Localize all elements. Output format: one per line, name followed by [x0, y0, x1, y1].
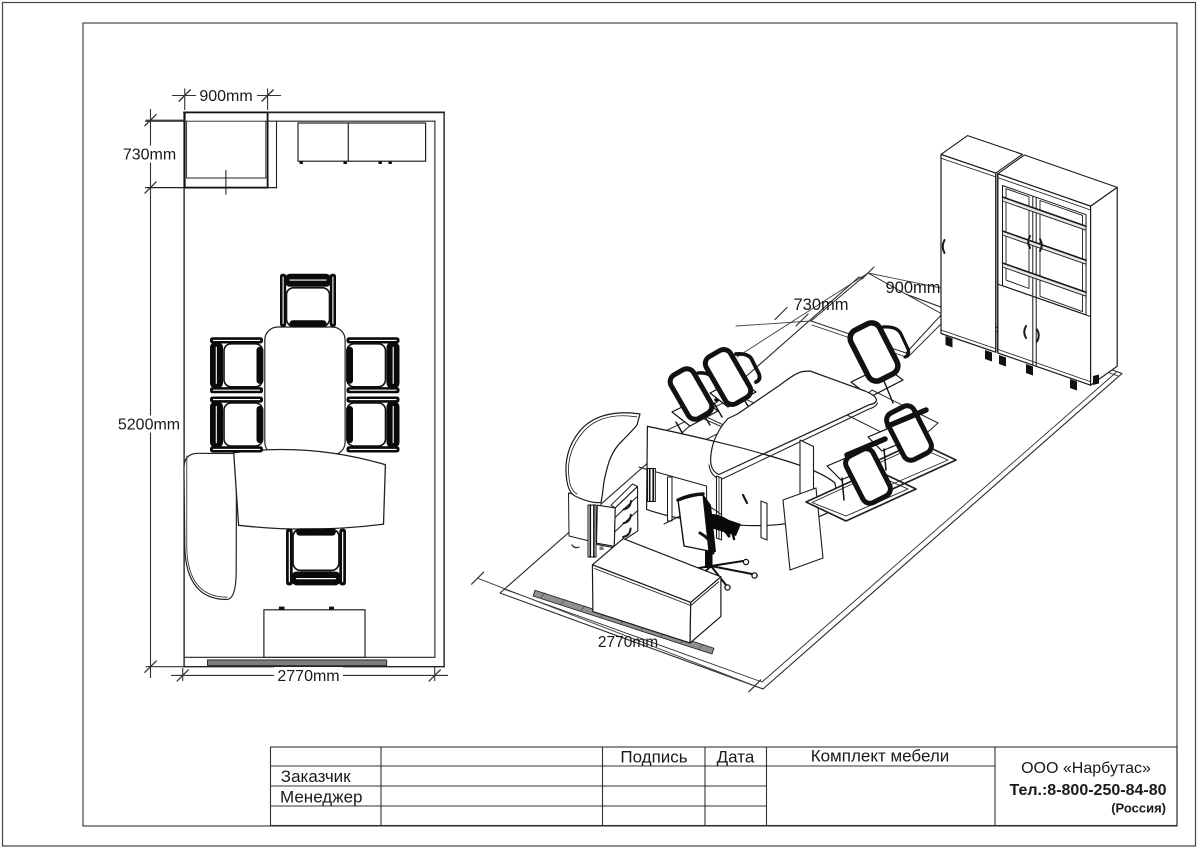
svg-text:900mm: 900mm: [885, 279, 940, 297]
svg-text:Подпись: Подпись: [620, 748, 687, 767]
svg-text:Тел.:8-800-250-84-80: Тел.:8-800-250-84-80: [1009, 782, 1166, 799]
svg-text:(Россия): (Россия): [1111, 801, 1166, 816]
svg-text:2770mm: 2770mm: [598, 634, 658, 651]
svg-text:Комплект мебели: Комплект мебели: [811, 747, 950, 766]
svg-text:Менеджер: Менеджер: [280, 787, 362, 806]
svg-text:5200mm: 5200mm: [118, 417, 180, 434]
svg-text:ООО «Нарбутас»: ООО «Нарбутас»: [1021, 760, 1151, 777]
svg-text:730mm: 730mm: [123, 147, 176, 164]
svg-text:900mm: 900mm: [199, 88, 252, 105]
svg-text:Заказчик: Заказчик: [281, 767, 351, 786]
svg-text:2770mm: 2770mm: [277, 668, 339, 685]
svg-text:Дата: Дата: [717, 748, 755, 767]
svg-text:730mm: 730mm: [793, 296, 848, 314]
